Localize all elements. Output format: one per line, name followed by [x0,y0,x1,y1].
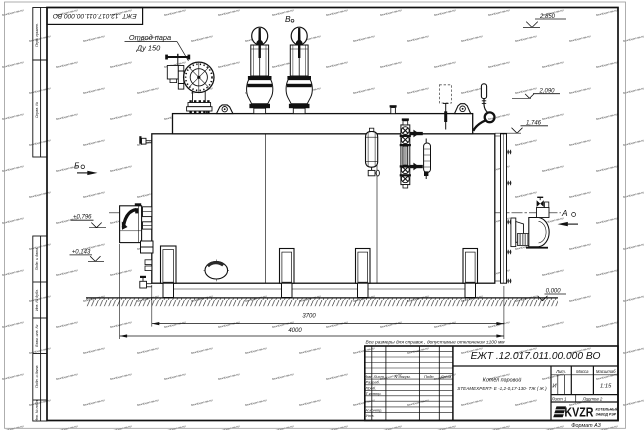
svg-text:Ду 150: Ду 150 [136,44,161,53]
svg-text:ЕЖТ .12.017.011.00.000 ВО: ЕЖТ .12.017.011.00.000 ВО [52,12,136,18]
svg-text:Лит.: Лит. [555,369,566,374]
svg-text:Н.контр.: Н.контр. [366,408,383,413]
svg-text:4000: 4000 [288,328,302,334]
svg-text:Отвод пара: Отвод пара [129,33,171,42]
svg-text:Т.контр.: Т.контр. [366,391,382,396]
svg-text:ЕЖТ .12.017.011.00.000 ВО: ЕЖТ .12.017.011.00.000 ВО [471,351,601,362]
svg-text:1,746: 1,746 [526,120,542,126]
svg-text:Подп.: Подп. [424,374,435,379]
svg-text:STEAMEXPERT- Е -1,2-0,17-130-: STEAMEXPERT- Е -1,2-0,17-130- ТЖ ( Ж ) [457,386,547,391]
svg-text:Дата: Дата [440,374,452,379]
svg-text:2,850: 2,850 [539,14,556,20]
svg-text:Инв. № подл.: Инв. № подл. [35,399,39,421]
svg-text:Формат А3: Формат А3 [571,423,601,429]
svg-text:Справ. №: Справ. № [35,102,39,118]
svg-text:Лист: Лист [373,374,385,379]
svg-text:А: А [561,208,568,218]
svg-text:Лист 1: Лист 1 [551,397,568,402]
svg-text:Инв. № дубл.: Инв. № дубл. [35,289,39,311]
svg-text:ЗАВОД РЭР: ЗАВОД РЭР [596,413,617,417]
svg-text:Масса: Масса [576,369,589,374]
svg-text:1:15: 1:15 [600,384,612,390]
svg-text:Б: Б [74,161,80,171]
svg-text:Взам. инв. №: Взам. инв. № [35,324,39,346]
svg-text:N докум.: N докум. [395,374,411,379]
svg-text:2,090: 2,090 [539,88,556,94]
svg-text:Изм.: Изм. [364,374,373,379]
svg-text:Все размеры для справок , допу: Все размеры для справок , допустимые отк… [366,339,506,345]
svg-text:Масштаб: Масштаб [596,369,616,374]
svg-text:КОТЕЛЬНЫЙ: КОТЕЛЬНЫЙ [596,408,619,412]
svg-text:Котел паровой: Котел паровой [483,377,522,384]
svg-text:0,000: 0,000 [546,289,562,295]
svg-text:KVZR: KVZR [564,405,593,420]
svg-text:Подп. и дата: Подп. и дата [35,248,39,271]
svg-text:Утв.: Утв. [366,413,375,418]
svg-text:Проб.: Проб. [366,385,377,390]
svg-text:3700: 3700 [302,313,316,319]
svg-text:+0,796: +0,796 [73,215,92,221]
svg-text:Листов 2: Листов 2 [582,397,603,402]
svg-text:В: В [285,14,291,24]
svg-text:Подп. и дата: Подп. и дата [35,365,39,388]
svg-text:+0,143: +0,143 [72,249,91,255]
svg-text:Разраб.: Разраб. [366,380,380,385]
svg-text:Перв. примен.: Перв. примен. [35,23,39,47]
